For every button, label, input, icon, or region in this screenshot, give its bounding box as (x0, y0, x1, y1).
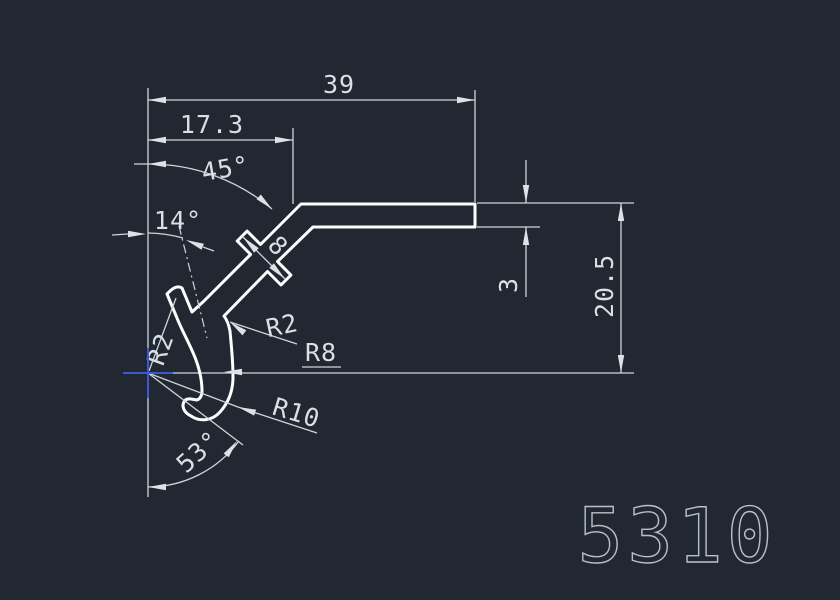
dim-17-text[interactable]: 17.3 (180, 110, 244, 139)
dim-3-text[interactable]: 3 (494, 277, 523, 293)
cad-drawing-stage: 39 17.3 45° 14° 8 3 (0, 0, 840, 600)
dim-14-text[interactable]: 14° (154, 206, 202, 235)
part-number-text[interactable]: 5310 (577, 491, 776, 580)
r8-text[interactable]: R8 (305, 338, 337, 367)
dim-39-text[interactable]: 39 (323, 70, 355, 99)
dim-205-text[interactable]: 20.5 (590, 254, 619, 318)
cad-canvas[interactable]: 39 17.3 45° 14° 8 3 (0, 0, 840, 600)
